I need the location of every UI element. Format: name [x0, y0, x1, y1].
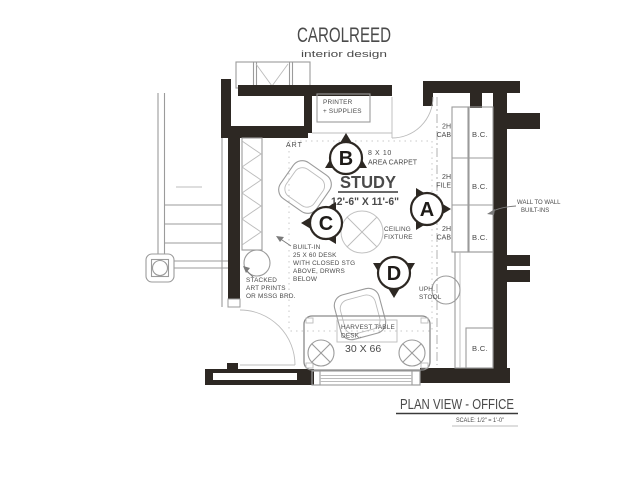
room-dimensions: 12'-6" X 11'-6" [331, 196, 399, 208]
entry-door-bottom-left [240, 310, 295, 365]
brand-header: CAROLREED interior design [297, 24, 391, 59]
built-in-desk [242, 138, 270, 276]
bc-label-2: B.C. [472, 182, 488, 191]
ceiling-label-line1: CEILING [384, 226, 411, 233]
printer-closet: PRINTER + SUPPLIES [312, 94, 392, 133]
cab3-line2: CAB [437, 235, 452, 242]
stool-label-line1: UPH. [419, 286, 435, 293]
floor-plan-drawing: CAROLREED interior design [0, 0, 640, 480]
bc-label-1: B.C. [472, 130, 488, 139]
view-marker-b: B [325, 133, 367, 174]
table-label-line2: DESK. [341, 333, 361, 340]
annotation-arrow [276, 236, 284, 242]
wall-to-wall-line2: BUILT-INS [521, 208, 549, 214]
marker-letter-c: C [319, 213, 333, 235]
brand-tagline: interior design [301, 49, 387, 59]
room-title: STUDY [340, 172, 396, 192]
bottom-window [312, 371, 420, 385]
wall-to-wall-built-ins: 2H CAB 2H FILE 2H CAB B.C. B.C. B.C. B.C… [419, 97, 561, 368]
view-marker-a: A [411, 188, 451, 230]
carpet-label-line2: AREA CARPET [368, 160, 418, 167]
staircase [146, 93, 229, 307]
bay-window [236, 62, 310, 88]
cab2-line1: 2H [442, 174, 451, 181]
cab3-line1: 2H [442, 226, 451, 233]
view-marker-c: C [301, 202, 342, 244]
printer-label-line1: PRINTER [323, 99, 353, 106]
brand-name: CAROLREED [297, 24, 391, 47]
builtin-note-line2: 25 X 60 DESK [293, 252, 337, 259]
carpet-label-line1: 8 X 10 [368, 150, 392, 157]
cab1-line2: CAB [437, 132, 452, 139]
ceiling-fixture: CEILING FIXTURE [341, 211, 413, 253]
stool-label-line2: STOOL [419, 294, 442, 301]
cabinet-column-front [452, 107, 469, 252]
builtin-note-line3: WITH CLOSED STG [293, 260, 355, 267]
ceiling-label-line2: FIXTURE [384, 234, 413, 241]
marker-letter-b: B [339, 148, 353, 170]
table-size-label: 30 X 66 [345, 343, 381, 355]
cased-opening [213, 373, 297, 380]
art-label: ART [286, 142, 303, 149]
cab2-line2: FILE [436, 183, 451, 190]
table-label-line1: HARVEST TABLE [341, 324, 395, 331]
drawing-title: PLAN VIEW - OFFICE [400, 396, 514, 413]
cab1-line1: 2H [442, 124, 451, 131]
walls [205, 79, 540, 385]
bc-label-4: B.C. [472, 344, 488, 353]
window-swing-lines [256, 64, 288, 86]
bookcase-column [468, 107, 493, 252]
stacked-note-line1: STACKED [246, 277, 277, 284]
builtin-note-line4: ABOVE, DRWRS [293, 268, 345, 275]
marker-letter-a: A [420, 199, 434, 221]
newel-post [146, 254, 174, 282]
title-block: PLAN VIEW - OFFICE SCALE: 1/2" = 1'-0" [396, 396, 518, 426]
scanned-floor-plan-page: CAROLREED interior design [0, 0, 640, 480]
wall-to-wall-line1: WALL TO WALL [517, 200, 561, 206]
stacked-note-line3: OR MSSG BRD. [246, 293, 296, 300]
marker-letter-d: D [387, 263, 401, 285]
drawing-scale: SCALE: 1/2" = 1'-0" [456, 417, 504, 424]
builtin-note-line1: BUILT-IN [293, 244, 321, 251]
printer-label-line2: + SUPPLIES [323, 108, 362, 115]
annotation-arrow [243, 266, 250, 273]
bc-label-3: B.C. [472, 233, 488, 242]
harvest-table: HARVEST TABLE DESK. 30 X 66 [304, 316, 430, 370]
view-marker-d: D [373, 257, 415, 298]
builtin-note-line5: BELOW [293, 276, 318, 283]
stacked-note-line2: ART PRINTS [246, 285, 286, 292]
wall-end-cap [228, 299, 240, 307]
